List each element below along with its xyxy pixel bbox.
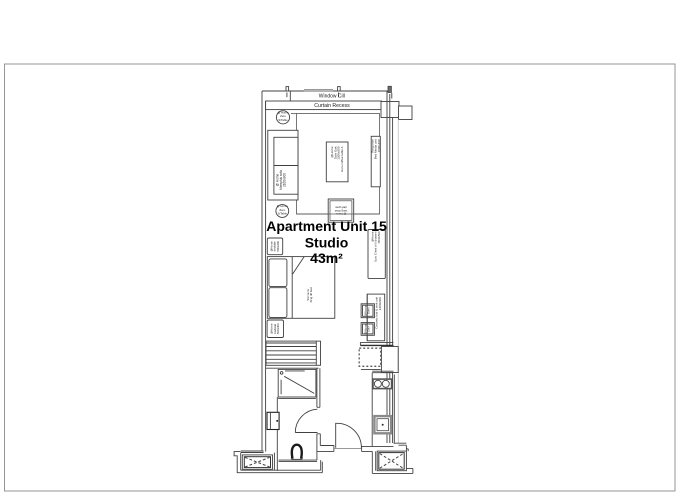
svg-text:S/Table: S/Table	[278, 212, 288, 216]
svg-text:Window Cill: Window Cill	[319, 94, 345, 100]
svg-text:500x400: 500x400	[276, 323, 280, 334]
svg-text:S/Table: S/Table	[278, 118, 288, 122]
svg-text:Studio: Studio	[305, 234, 349, 250]
svg-text:1500x400: 1500x400	[377, 139, 381, 153]
svg-text:2400x600: 2400x600	[378, 297, 382, 311]
svg-text:43m²: 43m²	[310, 250, 343, 266]
svg-text:2100x900: 2100x900	[282, 173, 286, 187]
svg-text:Curtain Recess: Curtain Recess	[314, 103, 350, 109]
svg-text:Euro coffee table A: Euro coffee table A	[340, 147, 344, 172]
svg-text:500x400: 500x400	[276, 240, 280, 251]
svg-text:Apartment Unit 15: Apartment Unit 15	[266, 218, 387, 234]
svg-text:dark grey: dark grey	[335, 206, 347, 210]
svg-text:King 4ft bed: King 4ft bed	[309, 287, 313, 302]
